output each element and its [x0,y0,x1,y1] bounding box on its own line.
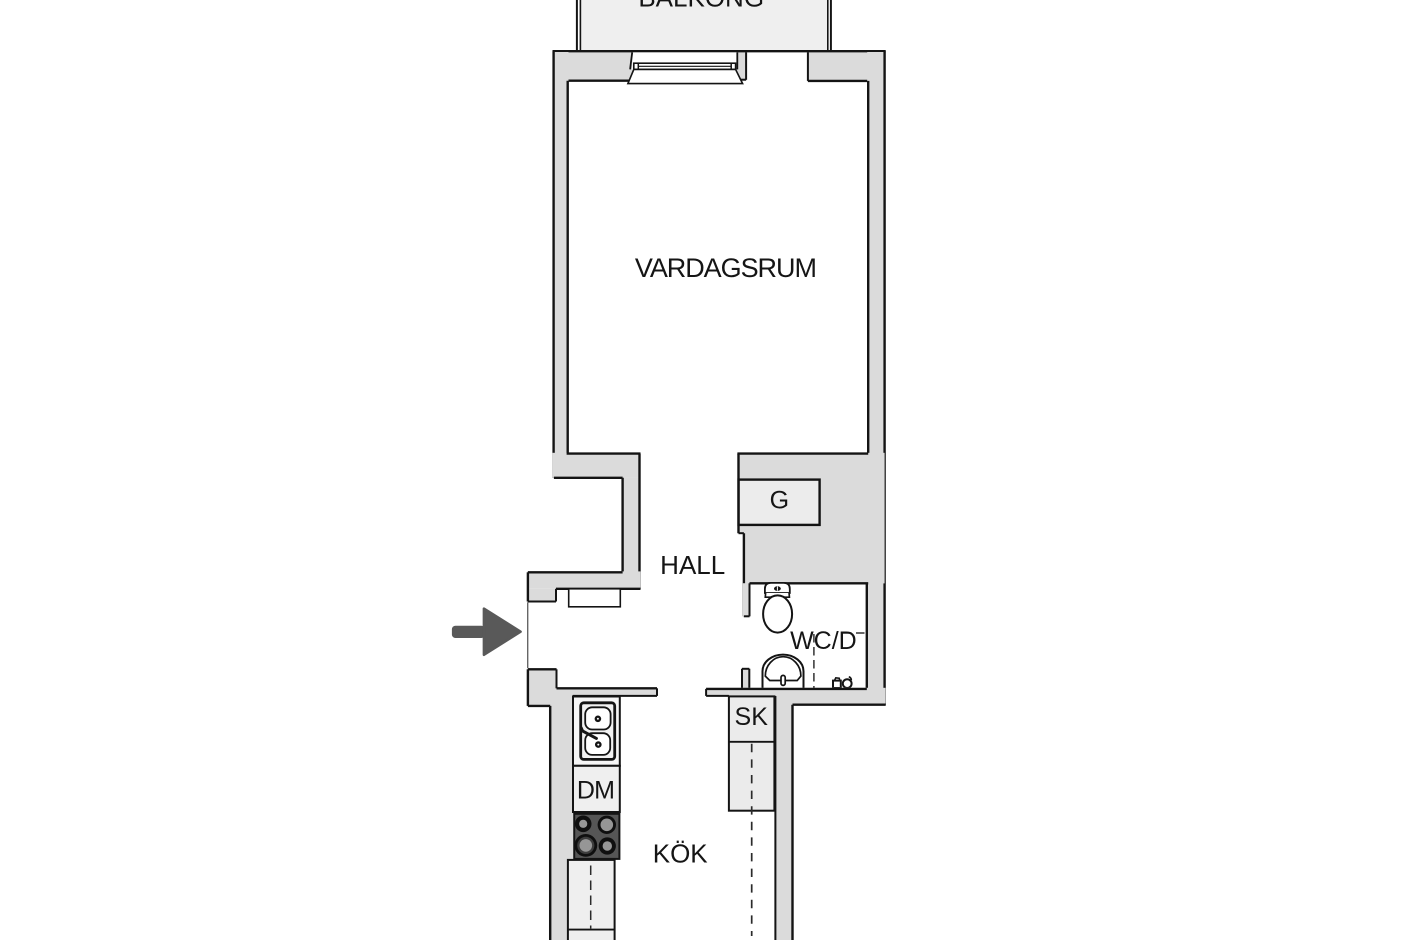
svg-text:KÖK: KÖK [653,838,709,868]
svg-text:BALKONG: BALKONG [638,0,764,13]
svg-text:SK: SK [735,703,769,731]
svg-text:DM: DM [577,777,614,805]
svg-text:HALL: HALL [660,550,725,580]
svg-text:WC/D: WC/D [790,627,857,655]
svg-text:VARDAGSRUM: VARDAGSRUM [635,253,816,283]
svg-text:G: G [770,486,789,514]
